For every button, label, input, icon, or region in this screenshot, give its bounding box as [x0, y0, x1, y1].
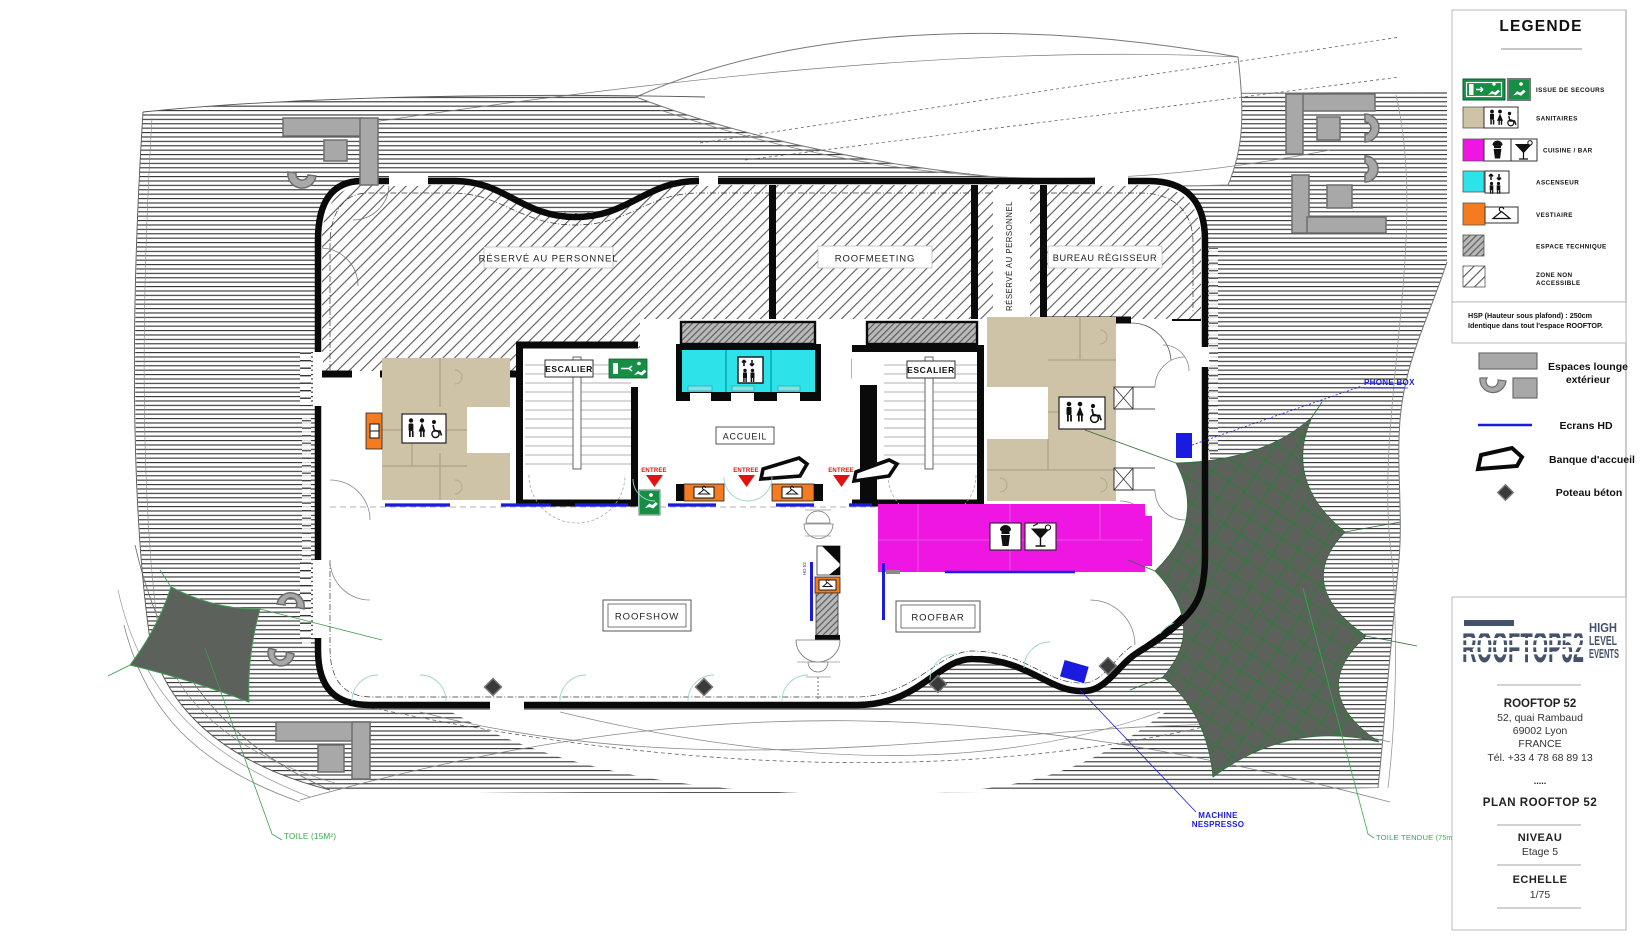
svg-text:Poteau béton: Poteau béton — [1556, 487, 1623, 499]
svg-text:NESPRESSO: NESPRESSO — [1192, 820, 1245, 829]
svg-text:ACCESSIBLE: ACCESSIBLE — [1536, 280, 1581, 287]
svg-text:MACHINE: MACHINE — [1198, 811, 1238, 820]
svg-text:TOILE TENDUE (75m2): TOILE TENDUE (75m2) — [1376, 833, 1459, 842]
svg-text:TOILE (15M²): TOILE (15M²) — [284, 832, 336, 841]
svg-text:ACCUEIL: ACCUEIL — [723, 432, 768, 442]
svg-text:1/75: 1/75 — [1530, 889, 1551, 901]
svg-text:BUREAU RÉGISSEUR: BUREAU RÉGISSEUR — [1053, 253, 1158, 263]
svg-text:CUISINE / BAR: CUISINE / BAR — [1543, 148, 1593, 155]
svg-text:ROOFBAR: ROOFBAR — [911, 613, 964, 624]
svg-text:ENTREE: ENTREE — [641, 468, 667, 474]
svg-text:52, quai Rambaud: 52, quai Rambaud — [1497, 712, 1583, 724]
svg-text:ROOFMEETING: ROOFMEETING — [835, 254, 916, 265]
svg-text:Tél. +33 4 78 68 89 13: Tél. +33 4 78 68 89 13 — [1487, 752, 1593, 764]
svg-text:Banque d'accueil: Banque d'accueil — [1549, 454, 1635, 466]
svg-text:EVENTS: EVENTS — [1589, 647, 1619, 661]
svg-text:Espaces lounge: Espaces lounge — [1548, 361, 1628, 373]
svg-text:ESPACE TECHNIQUE: ESPACE TECHNIQUE — [1536, 244, 1607, 251]
svg-text:Etage 5: Etage 5 — [1522, 846, 1558, 858]
svg-text:ENTREE: ENTREE — [828, 468, 854, 474]
svg-text:PHONE BOX: PHONE BOX — [1364, 378, 1415, 387]
svg-text:ESCALIER: ESCALIER — [907, 365, 955, 375]
svg-text:HSP (Hauteur sous plafond) : 2: HSP (Hauteur sous plafond) : 250cm — [1468, 311, 1592, 320]
svg-text:LEGENDE: LEGENDE — [1499, 18, 1582, 35]
svg-text:NIVEAU: NIVEAU — [1518, 832, 1563, 844]
svg-text:RÉSERVÉ AU PERSONNEL: RÉSERVÉ AU PERSONNEL — [1005, 201, 1014, 311]
svg-text:ROOFTOP52: ROOFTOP52 — [1462, 623, 1584, 672]
svg-text:HD 52: HD 52 — [802, 562, 807, 575]
svg-text:PLAN ROOFTOP 52: PLAN ROOFTOP 52 — [1483, 797, 1597, 809]
svg-text:ZONE NON: ZONE NON — [1536, 272, 1572, 279]
svg-text:69002 Lyon: 69002 Lyon — [1513, 725, 1568, 737]
svg-text:RÉSERVÉ AU PERSONNEL: RÉSERVÉ AU PERSONNEL — [479, 254, 619, 265]
svg-text:HIGH: HIGH — [1589, 621, 1617, 635]
svg-text:SANITAIRES: SANITAIRES — [1536, 116, 1578, 123]
svg-text:Ecrans HD: Ecrans HD — [1559, 420, 1613, 432]
svg-text:ISSUE DE SECOURS: ISSUE DE SECOURS — [1536, 87, 1605, 94]
svg-text:ECHELLE: ECHELLE — [1513, 874, 1568, 886]
svg-text:.....: ..... — [1534, 776, 1547, 786]
svg-text:FRANCE: FRANCE — [1518, 738, 1561, 750]
svg-text:ROOFTOP 52: ROOFTOP 52 — [1504, 698, 1576, 710]
svg-text:ESCALIER: ESCALIER — [545, 364, 593, 374]
svg-text:ROOFSHOW: ROOFSHOW — [615, 612, 679, 623]
svg-text:extérieur: extérieur — [1566, 374, 1610, 386]
svg-text:ASCENSEUR: ASCENSEUR — [1536, 180, 1579, 187]
svg-text:Identique dans tout l'espace R: Identique dans tout l'espace ROOFTOP. — [1468, 321, 1603, 330]
svg-text:VESTIAIRE: VESTIAIRE — [1536, 212, 1573, 219]
svg-text:LEVEL: LEVEL — [1589, 634, 1617, 648]
svg-text:ENTREE: ENTREE — [733, 468, 759, 474]
